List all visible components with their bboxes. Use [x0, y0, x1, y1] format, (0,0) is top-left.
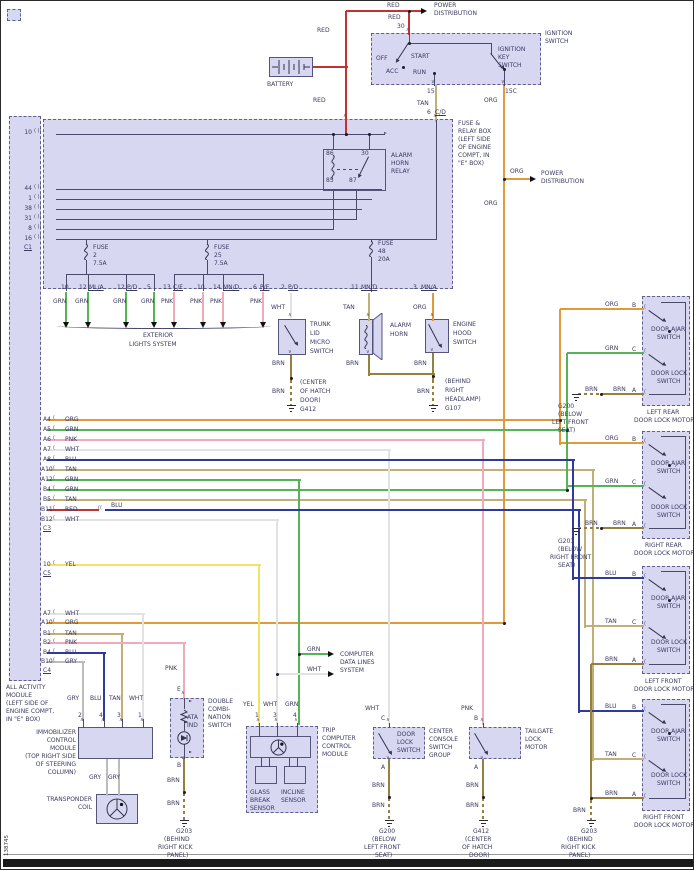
- label-6: 6: [427, 109, 431, 116]
- label-c: C: [632, 479, 636, 486]
- label-mn-d: MN/D: [361, 284, 377, 291]
- label-switch: SWITCH: [657, 378, 681, 385]
- label-control: CONTROL: [47, 737, 76, 744]
- label-grn: GRN: [113, 298, 126, 305]
- incline-sensor-box: [284, 766, 306, 784]
- label-1: 1: [255, 712, 259, 719]
- label-switch: SWITCH: [208, 722, 232, 729]
- label-b1: B1: [43, 630, 51, 637]
- connector-mark: (: [644, 439, 646, 444]
- label-tan: TAN: [605, 618, 617, 625]
- label-switch: SWITCH: [657, 736, 681, 743]
- label-10: 10: [24, 129, 32, 136]
- label-right-front: RIGHT FRONT: [643, 814, 684, 821]
- label-fuse: FUSE: [93, 244, 108, 251]
- exterior-lights-bracket: [57, 323, 271, 329]
- wire-brn: [432, 353, 434, 382]
- connector-mark: (: [644, 349, 646, 354]
- label-brn: BRN: [585, 520, 598, 527]
- connector-mark: ( ((: [34, 185, 41, 190]
- label-3: 3: [273, 712, 277, 719]
- wire-ckt: [297, 723, 298, 737]
- label-micro: MICRO: [310, 339, 330, 346]
- label-15: 15: [427, 88, 435, 95]
- label-a: A: [474, 764, 478, 771]
- splice-dot: [345, 133, 348, 136]
- splice-dot: [600, 527, 603, 530]
- label-behind: (BEHIND: [445, 378, 471, 385]
- label-a: A: [632, 791, 636, 798]
- label-blu: BLU: [90, 695, 102, 702]
- wire-wht: [47, 613, 145, 615]
- label-c3: C3: [43, 525, 51, 532]
- label-20a: 20A: [378, 256, 390, 263]
- label-switch: SWITCH: [657, 647, 681, 654]
- label-6: 6: [253, 284, 257, 291]
- label-door: DOOR: [397, 731, 415, 738]
- label-sensor: SENSOR: [250, 805, 275, 812]
- wire-wht: [142, 614, 144, 721]
- label-immobilizer: IMMOBILIZER: [36, 729, 76, 736]
- label-brn: BRN: [272, 388, 285, 395]
- left-front-door-lock-motor-box: [642, 566, 690, 674]
- wire-ckt: [277, 723, 278, 737]
- label-e-box: "E" BOX): [458, 160, 484, 167]
- label-brn: BRN: [605, 790, 618, 797]
- ground-icon: [287, 405, 296, 413]
- wire-wht: [277, 673, 330, 675]
- connector-mark: ( ((: [34, 205, 41, 210]
- label-combi: COMBI-: [208, 706, 230, 713]
- label-double: DOUBLE: [208, 698, 233, 705]
- label-behind: (BEHIND: [164, 836, 190, 843]
- ground-icon: [180, 820, 189, 828]
- label-switch: SWITCH: [545, 38, 569, 45]
- label-wht: WHT: [65, 610, 79, 617]
- splice-dot: [482, 796, 485, 799]
- label-run: RUN: [413, 69, 426, 76]
- label-panel: PANEL): [167, 852, 188, 859]
- splice-dot: [566, 489, 569, 492]
- label-trunk: TRUNK: [310, 321, 331, 328]
- label-brn: BRN: [372, 782, 385, 789]
- label-behind: (BEHIND: [567, 836, 593, 843]
- splice-dot: [432, 375, 435, 378]
- label-engine: ENGINE: [453, 321, 476, 328]
- wire-ckt: [685, 302, 686, 395]
- wire-grn: [65, 292, 67, 324]
- label-b: B: [632, 302, 636, 309]
- label-red: RED: [388, 14, 401, 21]
- label-14: 14: [213, 284, 221, 291]
- label-org: ORG: [65, 619, 79, 626]
- label-left-side: (LEFT SIDE: [458, 136, 490, 143]
- splice-dot: [290, 377, 293, 380]
- label-module: MODULE: [322, 751, 348, 758]
- label-brn: BRN: [605, 656, 618, 663]
- label-lights-system: LIGHTS SYSTEM: [129, 341, 177, 348]
- arrow-right-icon: [328, 671, 334, 677]
- ccoil-icon: [106, 798, 128, 820]
- label-data-lines: DATA LINES: [340, 659, 375, 666]
- connector-mark: ∨: [501, 80, 505, 85]
- connector-mark: (: [53, 496, 55, 501]
- connector-mark: (: [53, 486, 55, 491]
- connector-mark: (: [53, 466, 55, 471]
- label-g203: G203: [176, 828, 192, 835]
- label-brn: BRN: [466, 802, 479, 809]
- label-86: 86: [326, 150, 334, 157]
- connector-mark: (: [644, 524, 646, 529]
- label-a10: A10: [41, 619, 53, 626]
- label-a8: A8: [43, 456, 51, 463]
- wire-ckt: [207, 260, 208, 275]
- label-yel: YEL: [65, 561, 76, 568]
- wire-blu: [105, 509, 581, 511]
- connector-mark: (: [644, 482, 646, 487]
- wire-ckt: [685, 571, 686, 665]
- wire-pnk: [222, 292, 224, 324]
- label-ignition: IGNITION: [498, 46, 525, 53]
- label-below: (BELOW: [558, 411, 582, 418]
- label-brn: BRN: [466, 782, 479, 789]
- bottom-frame-bar: [3, 859, 693, 867]
- label-tan: TAN: [65, 466, 77, 473]
- label-horn: HORN: [391, 160, 409, 167]
- wire-brn: [369, 373, 435, 375]
- connector-mark: (: [644, 660, 646, 665]
- label-4: 4: [293, 712, 297, 719]
- label-lid: LID: [310, 330, 320, 337]
- label-switch: SWITCH: [657, 780, 681, 787]
- wire-ckt: [649, 798, 686, 799]
- label-red: RED: [313, 97, 326, 104]
- wire-pnk: [173, 292, 175, 324]
- wire-ckt: [337, 169, 360, 170]
- label-coil: COIL: [78, 804, 92, 811]
- label-a10: A10: [41, 466, 53, 473]
- label-grn: GRN: [65, 476, 78, 483]
- label-30: 30: [397, 23, 405, 30]
- label-right-kick: RIGHT KICK: [561, 844, 596, 851]
- label-b10: B10: [41, 658, 53, 665]
- label-blu: BLU: [605, 703, 617, 710]
- wire-grn: [87, 292, 89, 324]
- wire-ckt: [297, 758, 298, 767]
- label-org: ORG: [605, 435, 619, 442]
- label-blu: BLU: [605, 570, 617, 577]
- label-pnk: PNK: [461, 705, 473, 712]
- label-door-lock: DOOR LOCK: [651, 370, 687, 377]
- label-a4: A4: [43, 416, 51, 423]
- label-module: MODULE: [50, 745, 76, 752]
- label-seat: SEAT): [558, 562, 575, 569]
- label-start: START: [411, 53, 430, 60]
- label-grn: GRN: [65, 426, 78, 433]
- connector-mark: ∨: [431, 80, 435, 85]
- label-brn: BRN: [417, 388, 430, 395]
- label-power: POWER: [541, 170, 563, 177]
- label-wht: WHT: [365, 705, 379, 712]
- label-grn: GRN: [53, 298, 66, 305]
- led-icon: [177, 730, 191, 744]
- label-fuse: FUSE: [214, 244, 229, 251]
- label-30: 30: [361, 150, 369, 157]
- ground-icon: [572, 394, 581, 402]
- splice-dot: [368, 133, 371, 136]
- wire-grn: [47, 489, 569, 491]
- label-wht: WHT: [65, 516, 79, 523]
- connector-mark: ∨: [366, 350, 370, 355]
- label-brn: BRN: [414, 360, 427, 367]
- label-pnk: PNK: [65, 639, 77, 646]
- wire-ckt: [333, 191, 334, 230]
- connector-mark: ∨: [480, 756, 484, 761]
- label-ind: IND: [187, 722, 198, 729]
- label-b4: B4: [43, 486, 51, 493]
- label-door-ajar: DOOR AJAR: [651, 595, 685, 602]
- label-g412: G412: [473, 828, 489, 835]
- label-of-engine: OF ENGINE: [458, 144, 491, 151]
- label-red: RED: [387, 2, 400, 9]
- battery-icon: [269, 57, 313, 77]
- wire-pnk: [202, 292, 204, 324]
- wire-grn: [153, 292, 155, 324]
- wire-ckt: [649, 394, 686, 395]
- label-of-steering: OF STEERING: [36, 761, 76, 768]
- rcoil-icon: [362, 325, 370, 349]
- label-grn: GRN: [141, 298, 154, 305]
- label-below: (BELOW: [372, 836, 396, 843]
- all-activity-module-box: [9, 116, 41, 681]
- wire-brn: [183, 793, 185, 820]
- label-incline: INCLINE: [281, 789, 305, 796]
- label-brn: BRN: [573, 807, 586, 814]
- label-all-activity: ALL ACTIVITY: [6, 684, 46, 691]
- connector-mark: (: [53, 619, 55, 624]
- label-door-lock-motor: DOOR LOCK MOTOR: [634, 417, 694, 424]
- label-b4: B4: [43, 649, 51, 656]
- wire-brn: [590, 664, 592, 802]
- label-wht: WHT: [129, 695, 143, 702]
- wire-brn: [388, 798, 390, 820]
- connector-mark: ∨: [181, 756, 185, 761]
- wire-tan: [47, 469, 595, 471]
- label-g200: G200: [558, 403, 574, 410]
- label-glass: GLASS: [250, 789, 270, 796]
- label-key: KEY: [498, 54, 509, 61]
- label-org: ORG: [413, 304, 427, 311]
- connector-mark: (: [53, 516, 55, 521]
- label-door-lock-motor: DOOR LOCK MOTOR: [634, 550, 694, 557]
- connector-mark: ∧: [343, 114, 347, 119]
- label-a: A: [632, 657, 636, 664]
- label-door-lock: DOOR LOCK: [651, 504, 687, 511]
- label-door-lock-motor: DOOR LOCK MOTOR: [634, 822, 694, 829]
- wire-tan: [593, 758, 644, 760]
- wire-ckt: [261, 758, 262, 767]
- label-c4: C4: [43, 667, 51, 674]
- label-alarm: ALARM: [390, 322, 411, 329]
- label-a12: A12: [41, 476, 53, 483]
- label-38: 38: [24, 205, 32, 212]
- label-brn: BRN: [372, 802, 385, 809]
- ccoil-icon: [270, 739, 287, 756]
- wire-brn: [590, 800, 592, 820]
- connector-mark: ( ((: [34, 195, 41, 200]
- label-battery: BATTERY: [267, 81, 293, 88]
- glass-break-sensor-box: [255, 766, 277, 784]
- connector-mark: ∨: [288, 350, 292, 355]
- wire-ckt: [409, 43, 492, 44]
- label-relay: RELAY: [391, 168, 410, 175]
- connector-mark: (: [53, 658, 55, 663]
- connector-mark: ∧: [406, 28, 410, 33]
- label-g107: G107: [445, 405, 461, 412]
- label-grn: GRN: [605, 478, 618, 485]
- wire-ckt: [661, 704, 686, 705]
- label-tan: TAN: [109, 695, 121, 702]
- label-door: DOOR): [300, 397, 321, 404]
- label-b: B: [177, 762, 181, 769]
- connector-mark: (: [53, 456, 55, 461]
- label-headlamp: HEADLAMP): [445, 396, 481, 403]
- label-sensor: SENSOR: [281, 797, 306, 804]
- connector-mark: ( ((: [34, 225, 41, 230]
- label-mn-d: MN/D: [223, 284, 239, 291]
- wire-blu: [103, 653, 105, 721]
- label-3: 3: [117, 712, 121, 719]
- wire-ckt: [56, 229, 334, 230]
- wire-pnk: [47, 439, 485, 441]
- label-system: SYSTEM: [340, 667, 364, 674]
- label-48: 48: [378, 248, 386, 255]
- label-computer: COMPUTER: [340, 651, 374, 658]
- label-pnk: PNK: [65, 436, 77, 443]
- wire-ckt: [483, 723, 484, 728]
- label-pnk: PNK: [161, 298, 173, 305]
- label-switch: SWITCH: [397, 747, 421, 754]
- label-center: (CENTER: [300, 379, 326, 386]
- rcoil-icon: [329, 155, 337, 179]
- wiring-diagram-page: 138745 ( ((( ((( ((( ((( ((( ((( (((((((…: [0, 0, 694, 870]
- arrow-right-icon: [530, 176, 536, 182]
- wire-ckt: [333, 134, 334, 150]
- label-fuse: FUSE: [378, 240, 393, 247]
- label-switch: SWITCH: [498, 62, 522, 69]
- connector-mark: (: [644, 707, 646, 712]
- label-pnk: PNK: [165, 665, 177, 672]
- label-g203: G203: [581, 828, 597, 835]
- wire-org: [47, 419, 562, 421]
- label-distribution: DISTRIBUTION: [541, 178, 584, 185]
- wire-gry: [82, 662, 84, 721]
- label-a7: A7: [43, 610, 51, 617]
- connector-mark: ((: [98, 506, 102, 511]
- wire-brn: [432, 380, 434, 406]
- wire-brn: [603, 527, 644, 529]
- wire-ckt: [436, 120, 437, 240]
- wire-ckt: [389, 723, 390, 728]
- wire-ckt: [661, 302, 686, 303]
- connector-mark: (: [53, 426, 55, 431]
- label-brn: BRN: [613, 520, 626, 527]
- wire-wht: [47, 519, 279, 521]
- label-ignition: IGNITION: [545, 30, 572, 37]
- label-12: 12: [117, 284, 125, 291]
- wire-ckt: [56, 189, 382, 190]
- wire-red: [346, 10, 411, 12]
- immobilizer-control-module-box: [78, 727, 153, 759]
- wire-ckt: [685, 436, 686, 529]
- wire-org: [504, 178, 532, 180]
- connector-mark: ∨: [430, 348, 434, 353]
- label-switch: SWITCH: [310, 348, 334, 355]
- label-wht: WHT: [263, 701, 277, 708]
- label-5: 5: [147, 284, 151, 291]
- label-grn: GRN: [307, 646, 320, 653]
- label-b: B: [632, 571, 636, 578]
- connector-mark: (: [53, 610, 55, 615]
- connector-mark: (: [644, 755, 646, 760]
- label-engine-compt: ENGINE COMPT,: [6, 708, 54, 715]
- label-switch: SWITCH: [657, 468, 681, 475]
- connector-mark: (: [53, 476, 55, 481]
- right-rear-door-lock-motor-box: [642, 431, 690, 539]
- label-red: RED: [65, 506, 78, 513]
- label-31: 31: [24, 215, 32, 222]
- connector-mark: (: [53, 630, 55, 635]
- label-grn: GRN: [285, 701, 298, 708]
- ground-icon: [385, 820, 394, 828]
- connector-mark: ∧: [288, 313, 292, 318]
- tailgate-lock-motor-box: [469, 727, 521, 759]
- connector-mark: ∧: [386, 718, 390, 723]
- label-c-d: C/D: [435, 109, 446, 116]
- label-seat: SEAT): [558, 427, 575, 434]
- label-a5: A5: [43, 426, 51, 433]
- wire-tan: [121, 634, 123, 721]
- label-exterior: EXTERIOR: [143, 332, 173, 339]
- label-a7: A7: [43, 446, 51, 453]
- label-computer: COMPUTER: [322, 735, 356, 742]
- connector-mark: (: [53, 639, 55, 644]
- label-wht: WHT: [271, 304, 285, 311]
- label-p-d: P/D: [288, 284, 298, 291]
- label-lock: LOCK: [397, 739, 413, 746]
- label-tailgate: TAILGATE: [525, 728, 553, 735]
- horn-icon: [373, 313, 383, 360]
- arrow-right-icon: [421, 8, 427, 14]
- label-3: 3: [413, 284, 417, 291]
- label-blu: BLU: [65, 649, 77, 656]
- label-g200: G200: [379, 828, 395, 835]
- label-transponder: TRANSPONDER: [47, 796, 92, 803]
- connector-mark: ∧: [181, 691, 185, 696]
- label-mn-a: MN/A: [421, 284, 437, 291]
- label-switch: SWITCH: [657, 512, 681, 519]
- splice-dot: [433, 72, 436, 75]
- label-gry: GRY: [67, 695, 79, 702]
- splice-dot: [600, 393, 603, 396]
- label-tan: TAN: [343, 304, 355, 311]
- splice-dot: [276, 673, 279, 676]
- wire-grn: [47, 479, 301, 481]
- label-gry: GRY: [65, 658, 77, 665]
- label-of-hatch: OF HATCH: [462, 844, 492, 851]
- label-switch: SWITCH: [453, 339, 477, 346]
- connector-mark: (: [644, 574, 646, 579]
